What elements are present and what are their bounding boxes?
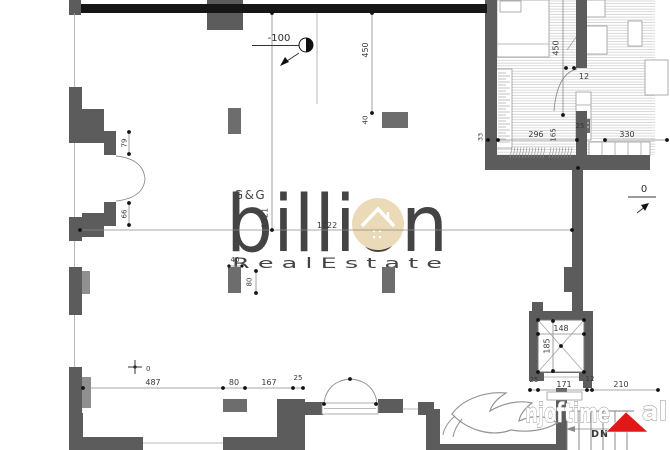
dim-apartment-330: 330 (619, 130, 634, 139)
apartment-unit (485, 0, 668, 170)
right-wall-pilaster (564, 267, 572, 292)
dim-apartment-door: 12 (579, 72, 589, 81)
dim-apartment-wall: 33 (477, 133, 485, 141)
dim-center-column-depth: 80 (246, 278, 254, 287)
datum-label: 0 (146, 365, 150, 373)
dim-apartment-296: 296 (528, 130, 543, 139)
stairs-dn-label: DN (591, 429, 609, 440)
wall-niche (645, 60, 668, 95)
dim-bottom-left-25: 25 (294, 374, 303, 382)
column (223, 399, 247, 412)
dim-main-height: 1521 (261, 208, 270, 228)
level-ground-label: 0 (641, 184, 647, 195)
dim-bottom-right-171: 171 (556, 380, 571, 389)
pillow (500, 1, 521, 12)
dim-main-width: 1722 (317, 221, 337, 230)
top-wall (75, 4, 487, 13)
dim-bottom-right-210: 210 (613, 380, 628, 389)
sofa (586, 0, 605, 17)
dim-elevator-depth: 185 (543, 338, 552, 353)
dim-bottom-left-80: 80 (229, 378, 239, 387)
right-wall (572, 170, 583, 311)
apartment-partition-wall (576, 0, 587, 68)
apartment-partition-wall (576, 111, 587, 155)
dim-upper-column: 40 (362, 116, 370, 125)
dim-bottom-right-25: 25 (530, 376, 539, 384)
portal-name-text: njoftime (525, 398, 610, 429)
house-icon (352, 198, 404, 250)
dim-apartment-165: 165 (550, 128, 558, 141)
floorplan-canvas: G&G billion R e a l E s t a t e (0, 0, 670, 450)
column (382, 267, 395, 293)
column (228, 267, 241, 293)
watermark-tagline: R e a l E s t a t e (232, 256, 442, 272)
dim-bottom-left-167: 167 (261, 378, 276, 387)
dim-left-door-lower: 66 (121, 209, 129, 218)
dim-left-door-upper: 79 (121, 139, 129, 148)
dim-center-column-width: 40 (231, 256, 240, 264)
dim-apartment-bay: 450 (552, 40, 561, 55)
dim-bottom-right-12: 12 (586, 375, 595, 383)
dim-bottom-left-487: 487 (145, 378, 160, 387)
top-left-stub (69, 0, 81, 15)
column (382, 112, 408, 128)
apartment-left-wall (485, 0, 497, 170)
portal-tld-text: al (642, 397, 667, 427)
column (228, 108, 241, 134)
sofa (586, 26, 607, 54)
armchair (628, 21, 642, 46)
level-mezzanine-label: -100 (268, 33, 291, 44)
dim-apartment-25: 25 (576, 122, 585, 130)
apartment-bottom-wall (485, 155, 650, 170)
dim-upper-bay: 450 (361, 42, 370, 57)
dim-elevator-width: 148 (553, 324, 568, 333)
